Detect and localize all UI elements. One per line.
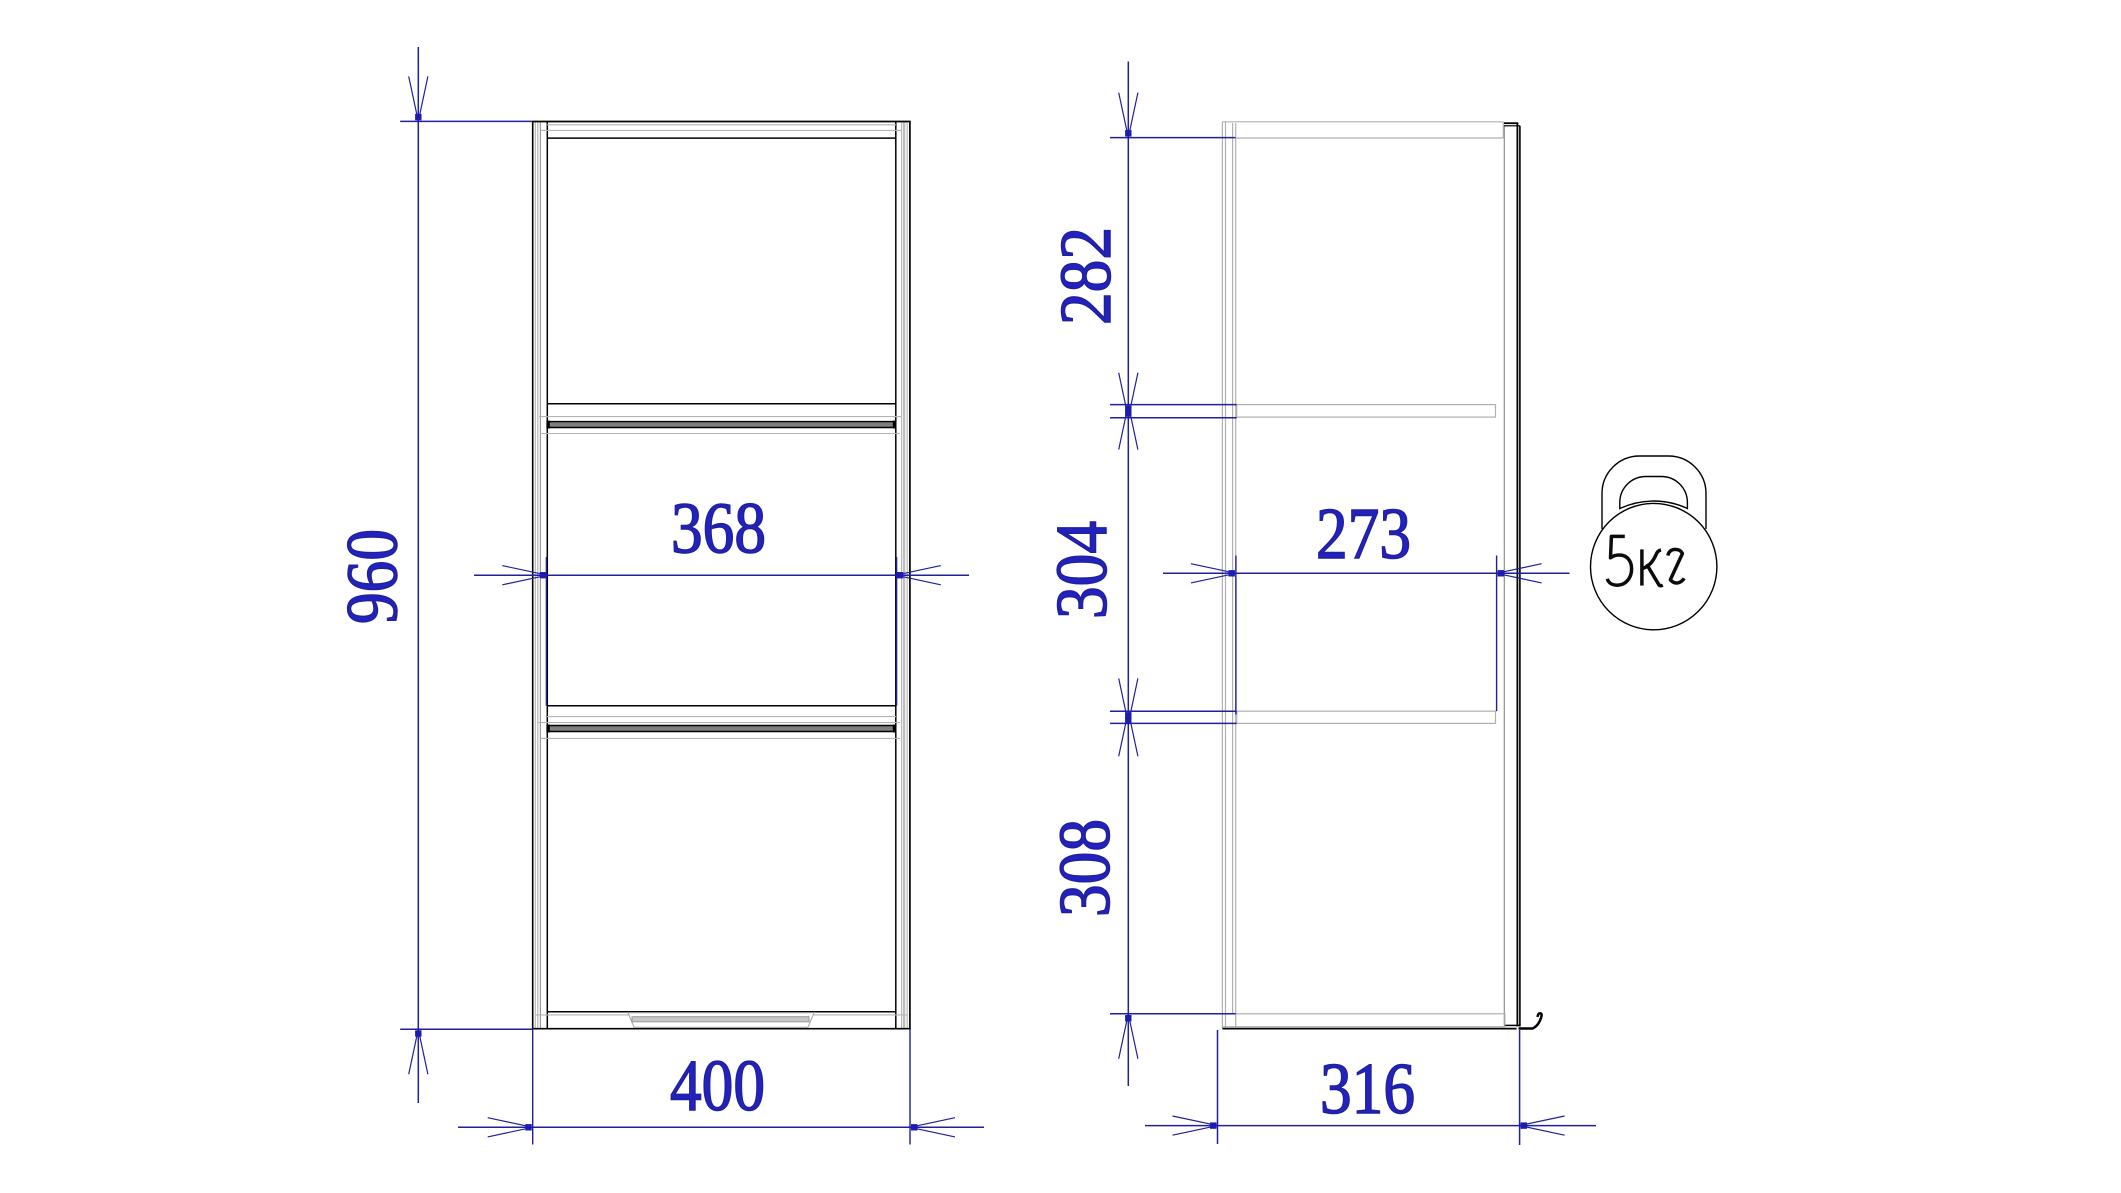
svg-text:368: 368 (671, 488, 766, 569)
svg-text:400: 400 (670, 1045, 765, 1126)
svg-text:273: 273 (1316, 493, 1411, 574)
svg-text:304: 304 (1041, 521, 1122, 619)
svg-text:316: 316 (1320, 1048, 1415, 1129)
svg-text:282: 282 (1045, 227, 1126, 325)
svg-text:308: 308 (1044, 819, 1125, 917)
svg-text:960: 960 (332, 529, 413, 624)
